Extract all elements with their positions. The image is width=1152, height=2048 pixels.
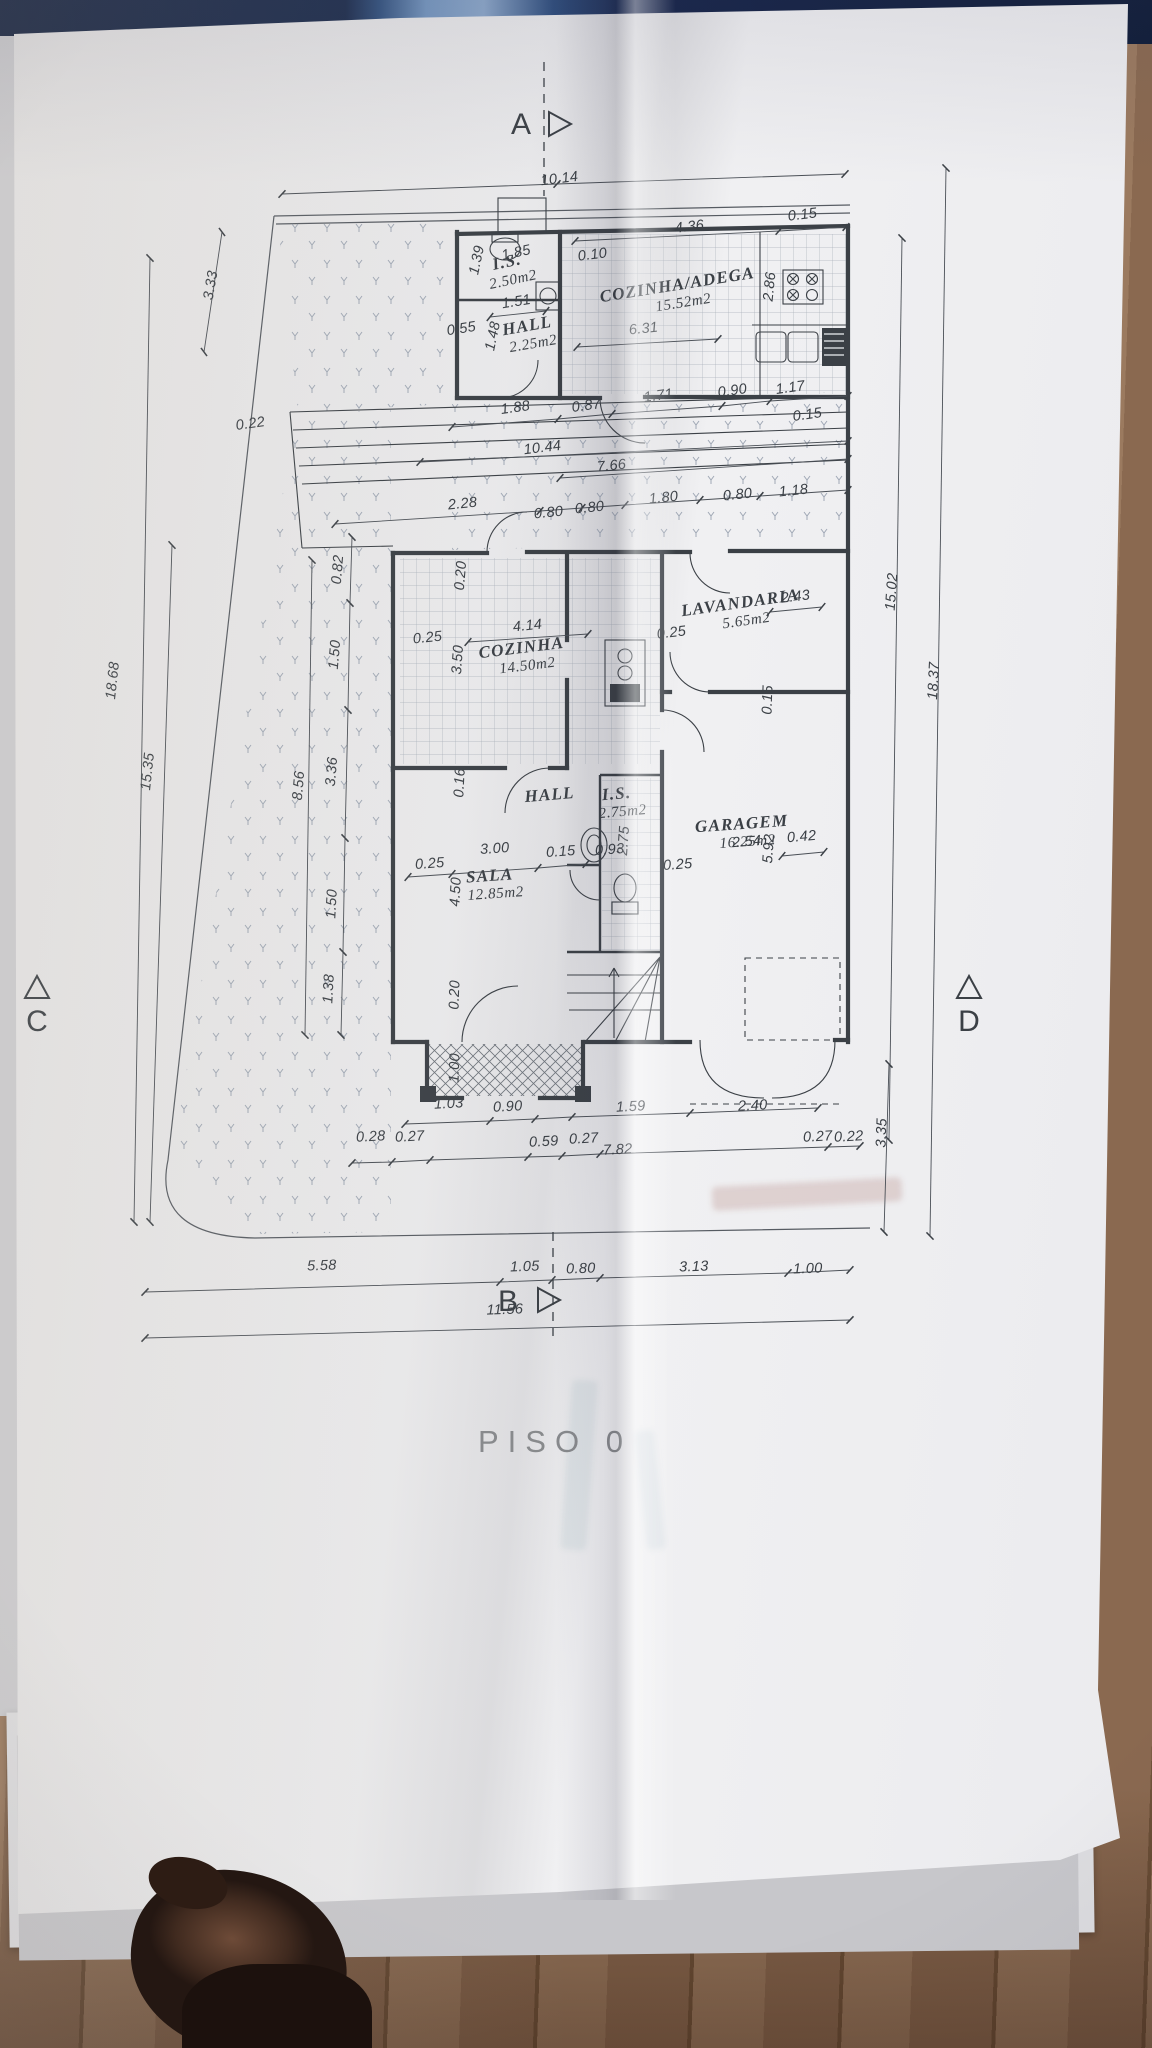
photo-of-floor-plan: 10.144.360.150.102.866.311.391.851.510.5… bbox=[0, 0, 1152, 2048]
drawing-paper bbox=[0, 0, 1152, 2048]
foot-shadow bbox=[182, 1964, 372, 2048]
